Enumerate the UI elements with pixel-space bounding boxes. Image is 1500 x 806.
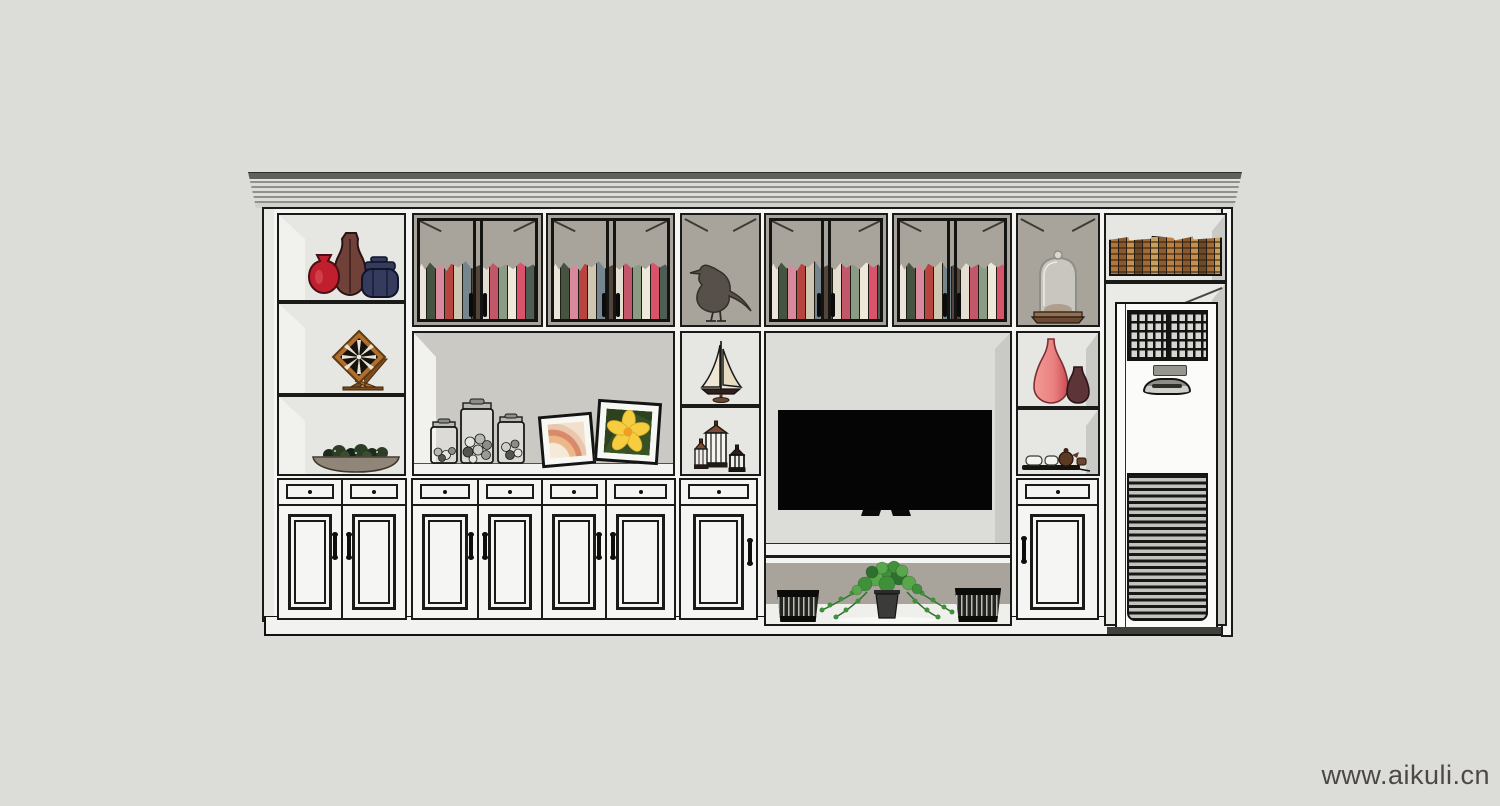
shelf-cell-vases: [277, 213, 406, 302]
perspective-line: [733, 218, 757, 232]
picture-frame-plumeria: [594, 399, 662, 465]
drawer-face: [286, 484, 334, 499]
drawer-face: [614, 484, 667, 499]
door-handle: [831, 293, 835, 317]
tea-cup: [1045, 456, 1058, 465]
drawer-face: [486, 484, 534, 499]
cabinet-door: [1016, 504, 1099, 620]
bird-figurine: [687, 260, 753, 324]
door-panel: [488, 514, 532, 610]
decor-shell-jars: [430, 398, 545, 464]
door-panel-inner: [558, 520, 590, 604]
cabinet-door: [477, 504, 543, 620]
door-panel-inner: [494, 520, 526, 604]
door-handle: [748, 540, 752, 564]
door-panel-inner: [699, 520, 738, 604]
tv-screen: [778, 410, 992, 510]
vase-plum-small: [1067, 367, 1089, 403]
niche-red-vases: [1016, 331, 1100, 408]
door-handle: [597, 534, 601, 558]
door-panel: [616, 514, 665, 610]
glass-cloche: [1030, 246, 1086, 324]
drawer-face: [688, 484, 749, 499]
tea-caddy: [1077, 458, 1086, 465]
vase-pink-teardrop: [1034, 339, 1068, 403]
drawer: [679, 478, 758, 506]
lantern-small-right: [729, 445, 745, 472]
shelf-cell-antique-books: [1104, 213, 1227, 282]
tea-cup: [1026, 456, 1042, 465]
ac-base-shadow: [1107, 627, 1221, 634]
teapot: [1059, 448, 1079, 466]
decor-succulent-bowl: [311, 443, 401, 473]
niche-tea-set: [1016, 408, 1100, 476]
cabinet-door: [541, 504, 607, 620]
cabinet-door: [679, 504, 758, 620]
niche-lanterns: [680, 406, 761, 476]
jar-navy: [362, 257, 398, 297]
drawer: [341, 478, 407, 506]
coral-artwork: [548, 421, 587, 458]
tea-tray: [1022, 465, 1080, 470]
alcove-floor: [766, 543, 1010, 555]
door-panel-inner: [358, 520, 390, 604]
door-handle: [602, 293, 606, 317]
door-handle: [817, 293, 821, 317]
cabinet-door: [341, 504, 407, 620]
door-handle: [616, 293, 620, 317]
perspective-line: [1072, 218, 1096, 232]
door-handle: [1022, 538, 1026, 562]
ac-bottom-grille: [1127, 473, 1208, 621]
door-panel: [552, 514, 596, 610]
sailboat-model: [692, 337, 750, 403]
scene: www.aikuli.cn: [0, 0, 1500, 806]
door-handle: [469, 534, 473, 558]
door-panel: [422, 514, 468, 610]
door-handle: [957, 293, 961, 317]
door-handle: [347, 534, 351, 558]
shelf-cell-clock: [277, 302, 406, 395]
door-handle: [943, 293, 947, 317]
cabinet-door: [411, 504, 479, 620]
ac-display-panel: [1153, 365, 1187, 376]
drawer: [277, 478, 343, 506]
lantern-large: [705, 421, 727, 467]
door-handle: [333, 534, 337, 558]
glass-bookcase-3: [764, 213, 888, 327]
jar-tall: [461, 399, 493, 463]
perspective-line: [1021, 218, 1045, 232]
potted-ivy-plant: [812, 560, 962, 624]
door-handle: [483, 534, 487, 558]
crown-molding: [248, 172, 1242, 208]
decor-pink-vases: [1026, 337, 1090, 405]
door-panel-inner: [1036, 520, 1079, 604]
door-panel-inner: [622, 520, 659, 604]
ac-intake-grille: [1127, 310, 1208, 361]
door-panel: [288, 514, 332, 610]
plant-shelf: [764, 556, 1012, 626]
ac-air-outlet: [1143, 378, 1191, 395]
door-handle: [469, 293, 473, 317]
picture-frame-coral: [538, 412, 596, 469]
drawer-face: [550, 484, 598, 499]
tv-stand-foot: [891, 510, 911, 516]
perspective-line: [685, 218, 709, 232]
display-shelf-jars-frames: [412, 331, 675, 476]
drawer-face: [420, 484, 470, 499]
niche-cloche: [1016, 213, 1100, 327]
cabinet-door: [605, 504, 676, 620]
door-handle: [483, 293, 487, 317]
plumeria-artwork: [604, 408, 653, 455]
glass-bookcase-4: [892, 213, 1012, 327]
drawer: [477, 478, 543, 506]
cell-inner-wall: [279, 304, 305, 393]
bowl: [313, 457, 399, 472]
cabinet-side-left: [264, 209, 274, 616]
door-panel-inner: [294, 520, 326, 604]
tv-stand-foot: [861, 510, 881, 516]
vase-red: [309, 255, 339, 293]
decor-diamond-clock: [319, 329, 399, 391]
jar-medium: [498, 414, 524, 463]
drawer-face: [1025, 484, 1090, 499]
drawer: [605, 478, 676, 506]
drawer: [1016, 478, 1099, 506]
antique-books-row: [1109, 235, 1222, 276]
tea-set: [1021, 443, 1091, 473]
jar-small: [431, 419, 457, 463]
door-panel: [352, 514, 396, 610]
decor-vases-group: [299, 229, 401, 299]
niche-sailboat: [680, 331, 761, 406]
door-handle: [611, 534, 615, 558]
alcove-inner-wall: [995, 333, 1010, 555]
door-panel: [1030, 514, 1085, 610]
glass-bookcase-1: [412, 213, 543, 327]
tv-alcove: [764, 331, 1012, 557]
niche-bird: [680, 213, 761, 327]
door-panel: [693, 514, 744, 610]
glass-door-right: [947, 218, 1007, 322]
watermark: www.aikuli.cn: [1321, 760, 1490, 791]
plant-pot: [876, 594, 898, 618]
glass-bookcase-2: [546, 213, 675, 327]
lantern-trio: [694, 419, 748, 473]
shelf-cell-bowl: [277, 395, 406, 476]
drawer: [541, 478, 607, 506]
foliage: [852, 561, 922, 595]
door-panel-inner: [428, 520, 462, 604]
drawer-face: [350, 484, 398, 499]
cabinet-door: [277, 504, 343, 620]
cell-inner-wall: [279, 397, 305, 474]
drawer: [411, 478, 479, 506]
